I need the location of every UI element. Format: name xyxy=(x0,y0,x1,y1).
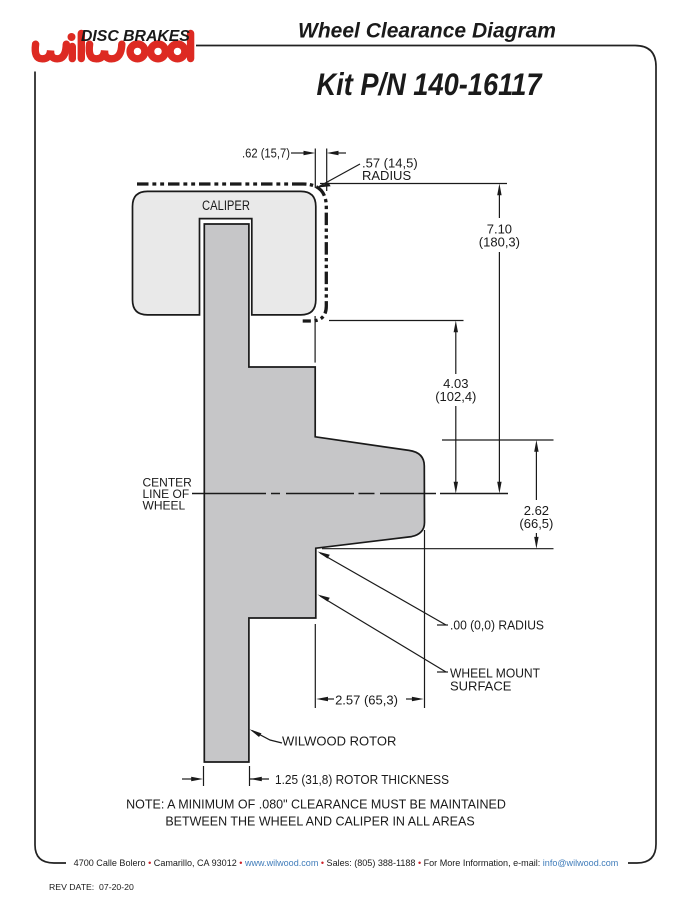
svg-text:RADIUS: RADIUS xyxy=(362,168,411,183)
svg-text:REV DATE: 07-20-20: REV DATE: 07-20-20 xyxy=(49,882,134,892)
svg-text:(180,3): (180,3) xyxy=(479,235,520,250)
svg-text:.62 (15,7): .62 (15,7) xyxy=(242,146,290,161)
svg-text:Kit P/N 140-16117: Kit P/N 140-16117 xyxy=(317,66,543,102)
svg-text:BETWEEN THE WHEEL AND CALIPER: BETWEEN THE WHEEL AND CALIPER IN ALL ARE… xyxy=(165,815,474,829)
svg-text:4700 Calle Bolero • Camarillo,: 4700 Calle Bolero • Camarillo, CA 93012 … xyxy=(74,858,619,868)
svg-text:(102,4): (102,4) xyxy=(435,389,476,404)
svg-text:DISC BRAKES: DISC BRAKES xyxy=(81,28,190,45)
svg-text:WHEEL: WHEEL xyxy=(143,499,186,513)
svg-text:1.25 (31,8) ROTOR THICKNESS: 1.25 (31,8) ROTOR THICKNESS xyxy=(275,772,449,787)
svg-text:.00 (0,0) RADIUS: .00 (0,0) RADIUS xyxy=(450,618,544,633)
svg-text:WILWOOD ROTOR: WILWOOD ROTOR xyxy=(282,734,396,749)
svg-text:CALIPER: CALIPER xyxy=(202,198,250,213)
svg-text:SURFACE: SURFACE xyxy=(450,679,512,694)
svg-text:2.57 (65,3): 2.57 (65,3) xyxy=(335,693,398,708)
svg-text:Wheel Clearance Diagram: Wheel Clearance Diagram xyxy=(298,20,556,43)
svg-text:NOTE: A MINIMUM OF .080" CLEAR: NOTE: A MINIMUM OF .080" CLEARANCE MUST … xyxy=(126,798,506,812)
svg-text:(66,5): (66,5) xyxy=(519,516,553,531)
